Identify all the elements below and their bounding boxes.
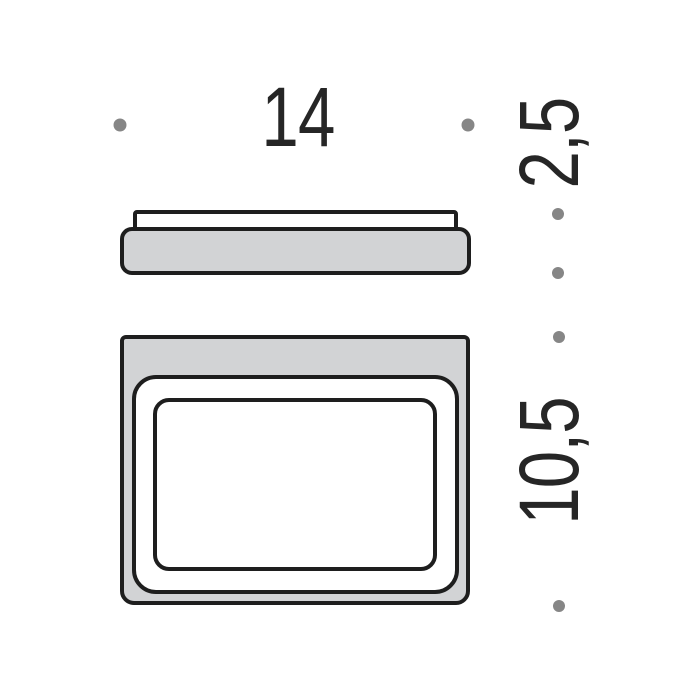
technical-drawing-canvas: 14 2,5 10,5 xyxy=(0,0,700,700)
dimension-dot-width-right xyxy=(462,119,475,132)
dimension-dot-width-left xyxy=(114,119,127,132)
dimension-label-thickness: 2,5 xyxy=(507,97,591,188)
front-view-basin-outline xyxy=(153,398,437,571)
dimension-label-depth: 10,5 xyxy=(507,397,591,525)
dimension-label-width: 14 xyxy=(261,75,334,159)
side-view-body xyxy=(120,227,471,275)
dimension-dot-depth-top xyxy=(553,331,565,343)
dimension-dot-depth-bottom xyxy=(553,600,565,612)
dimension-dot-thickness-bottom xyxy=(552,267,564,279)
dimension-dot-thickness-top xyxy=(552,208,564,220)
